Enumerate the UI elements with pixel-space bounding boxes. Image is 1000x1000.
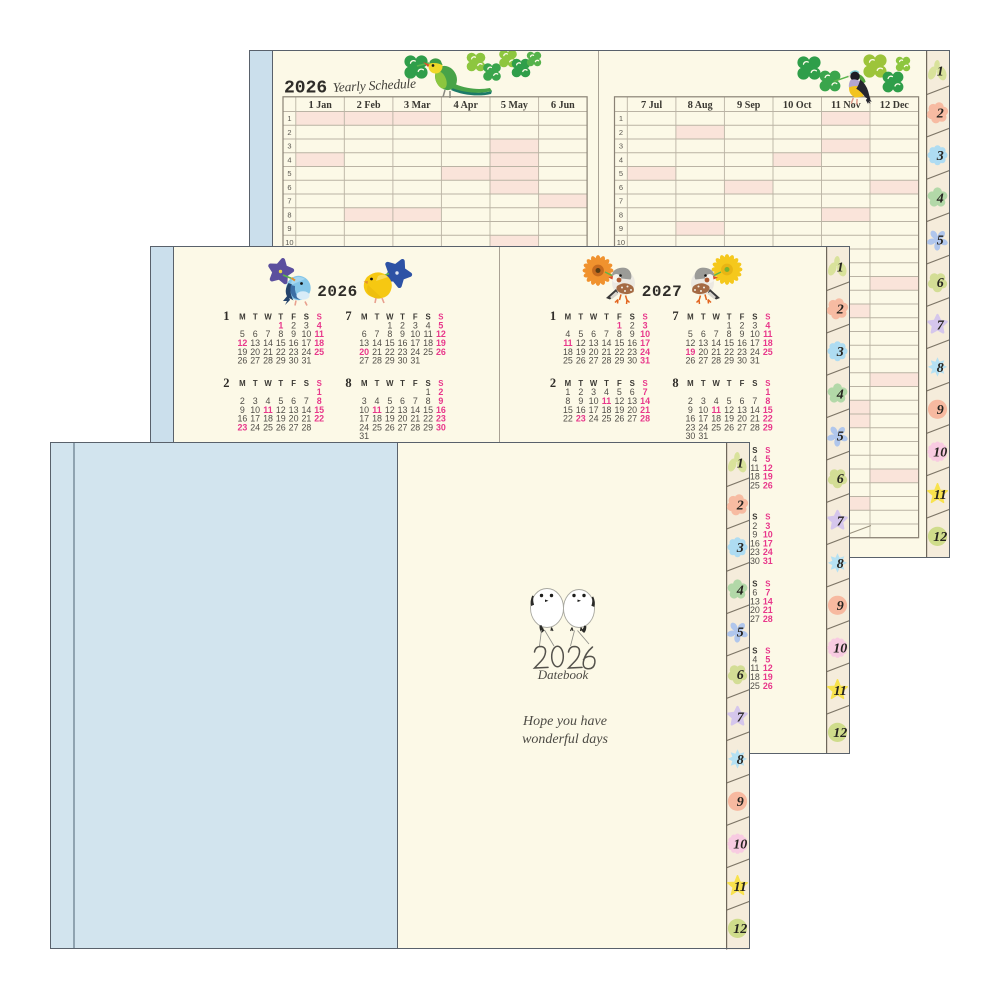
svg-text:8: 8 [287, 210, 291, 219]
svg-text:25: 25 [423, 347, 433, 357]
svg-text:29: 29 [763, 423, 773, 433]
svg-text:31: 31 [301, 356, 311, 366]
svg-text:3: 3 [836, 345, 844, 360]
svg-text:2: 2 [619, 128, 623, 137]
svg-text:S: S [752, 379, 757, 388]
svg-text:1: 1 [937, 64, 944, 79]
svg-text:6: 6 [619, 183, 623, 192]
svg-text:25: 25 [750, 681, 760, 691]
svg-text:26: 26 [385, 423, 395, 433]
svg-text:26: 26 [724, 423, 734, 433]
svg-text:11: 11 [934, 488, 947, 503]
svg-text:11 Nov: 11 Nov [831, 100, 861, 111]
svg-text:1: 1 [737, 457, 744, 472]
svg-text:5: 5 [287, 169, 291, 178]
svg-text:9: 9 [837, 599, 844, 614]
svg-text:1: 1 [287, 114, 291, 123]
svg-text:3: 3 [287, 142, 291, 151]
svg-text:6: 6 [287, 183, 291, 192]
svg-text:25: 25 [763, 347, 773, 357]
svg-text:29: 29 [276, 356, 286, 366]
svg-text:8: 8 [937, 361, 944, 376]
svg-text:W: W [713, 379, 721, 388]
svg-text:Hope you have: Hope you have [522, 714, 607, 729]
svg-text:7: 7 [937, 318, 945, 333]
svg-text:3: 3 [736, 541, 744, 556]
svg-text:24: 24 [250, 423, 260, 433]
svg-text:3: 3 [619, 142, 623, 151]
svg-text:30: 30 [398, 356, 408, 366]
svg-text:30: 30 [436, 423, 446, 433]
svg-text:25: 25 [711, 423, 721, 433]
svg-text:25: 25 [372, 423, 382, 433]
svg-text:25: 25 [563, 356, 573, 366]
svg-text:M: M [361, 313, 368, 322]
svg-text:F: F [291, 379, 296, 388]
svg-text:S: S [304, 379, 309, 388]
svg-text:23: 23 [576, 414, 586, 424]
svg-text:2: 2 [550, 376, 556, 390]
svg-text:W: W [713, 313, 721, 322]
svg-text:9 Sep: 9 Sep [737, 100, 761, 111]
svg-text:31: 31 [410, 356, 420, 366]
svg-text:26: 26 [763, 481, 773, 491]
svg-text:31: 31 [359, 431, 369, 441]
svg-text:F: F [413, 379, 418, 388]
svg-text:27: 27 [250, 356, 260, 366]
svg-text:7: 7 [619, 197, 623, 206]
svg-text:28: 28 [301, 423, 311, 433]
svg-text:5 May: 5 May [501, 100, 528, 111]
svg-text:2026: 2026 [284, 79, 327, 99]
svg-text:29: 29 [614, 356, 624, 366]
svg-text:M: M [687, 379, 694, 388]
svg-text:Yearly Schedule: Yearly Schedule [332, 76, 416, 95]
svg-text:8: 8 [672, 376, 678, 390]
svg-text:29: 29 [423, 423, 433, 433]
svg-text:27: 27 [698, 356, 708, 366]
svg-text:2 Feb: 2 Feb [357, 100, 381, 111]
svg-text:26: 26 [276, 423, 286, 433]
svg-text:7: 7 [345, 309, 351, 323]
svg-text:12: 12 [833, 726, 847, 741]
svg-text:3 Mar: 3 Mar [404, 100, 431, 111]
svg-text:M: M [687, 313, 694, 322]
svg-text:T: T [727, 379, 732, 388]
svg-text:26: 26 [237, 356, 247, 366]
svg-text:1: 1 [223, 309, 229, 323]
svg-text:29: 29 [385, 356, 395, 366]
svg-text:1: 1 [837, 261, 844, 276]
svg-text:T: T [278, 379, 283, 388]
svg-text:25: 25 [602, 414, 612, 424]
svg-text:Datebook: Datebook [537, 667, 589, 682]
svg-text:26: 26 [614, 414, 624, 424]
svg-text:6: 6 [737, 668, 744, 683]
svg-text:T: T [375, 313, 380, 322]
svg-text:26: 26 [685, 356, 695, 366]
svg-text:8 Aug: 8 Aug [688, 100, 713, 111]
svg-text:M: M [565, 313, 572, 322]
svg-text:M: M [361, 379, 368, 388]
svg-text:1: 1 [619, 114, 623, 123]
svg-text:8: 8 [737, 753, 744, 768]
svg-text:28: 28 [711, 356, 721, 366]
svg-text:6: 6 [937, 276, 944, 291]
svg-text:10: 10 [933, 446, 947, 461]
svg-text:31: 31 [750, 356, 760, 366]
svg-text:26: 26 [576, 356, 586, 366]
svg-text:2: 2 [736, 499, 744, 514]
svg-text:8: 8 [619, 210, 623, 219]
svg-text:T: T [701, 313, 706, 322]
svg-text:12 Dec: 12 Dec [880, 100, 910, 111]
svg-text:7: 7 [837, 515, 845, 530]
svg-text:24: 24 [589, 414, 599, 424]
svg-text:22: 22 [314, 414, 324, 424]
svg-text:T: T [253, 313, 258, 322]
svg-text:M: M [239, 379, 246, 388]
svg-text:25: 25 [263, 423, 273, 433]
svg-text:27: 27 [359, 356, 369, 366]
svg-text:2026: 2026 [317, 283, 357, 301]
svg-text:28: 28 [750, 423, 760, 433]
svg-text:28: 28 [602, 356, 612, 366]
svg-text:9: 9 [737, 795, 744, 810]
svg-text:6 Jun: 6 Jun [551, 100, 575, 111]
svg-text:T: T [375, 379, 380, 388]
svg-text:8: 8 [345, 376, 351, 390]
svg-text:11: 11 [734, 880, 747, 895]
svg-text:26: 26 [763, 681, 773, 691]
svg-text:11: 11 [834, 684, 847, 699]
svg-text:7: 7 [737, 711, 745, 726]
svg-text:W: W [386, 379, 394, 388]
svg-text:M: M [239, 313, 246, 322]
svg-text:7 Jul: 7 Jul [641, 100, 662, 111]
svg-text:wonderful days: wonderful days [522, 732, 608, 747]
svg-text:22: 22 [563, 414, 573, 424]
svg-text:5: 5 [737, 626, 744, 641]
svg-text:4: 4 [287, 155, 291, 164]
svg-text:27: 27 [289, 423, 299, 433]
svg-text:31: 31 [763, 556, 773, 566]
svg-text:9: 9 [619, 224, 623, 233]
svg-text:30: 30 [289, 356, 299, 366]
svg-text:4 Apr: 4 Apr [453, 100, 478, 111]
svg-text:7: 7 [287, 197, 291, 206]
svg-text:28: 28 [372, 356, 382, 366]
svg-text:2: 2 [836, 303, 844, 318]
svg-text:28: 28 [763, 614, 773, 624]
svg-text:23: 23 [237, 423, 247, 433]
svg-text:10: 10 [833, 642, 847, 657]
svg-text:9: 9 [287, 224, 291, 233]
svg-text:T: T [701, 379, 706, 388]
svg-text:4: 4 [736, 584, 744, 599]
svg-text:5: 5 [619, 169, 623, 178]
svg-text:T: T [578, 313, 583, 322]
svg-text:6: 6 [837, 472, 844, 487]
svg-text:31: 31 [698, 431, 708, 441]
svg-text:28: 28 [640, 414, 650, 424]
svg-text:4: 4 [836, 388, 844, 403]
svg-text:27: 27 [750, 614, 760, 624]
svg-text:W: W [264, 379, 272, 388]
svg-text:5: 5 [937, 234, 944, 249]
svg-text:12: 12 [933, 530, 947, 545]
svg-text:1: 1 [550, 309, 556, 323]
svg-text:28: 28 [410, 423, 420, 433]
svg-text:30: 30 [627, 356, 637, 366]
svg-text:27: 27 [589, 356, 599, 366]
svg-text:4: 4 [619, 155, 623, 164]
svg-text:10 Oct: 10 Oct [783, 100, 812, 111]
svg-text:27: 27 [627, 414, 637, 424]
svg-text:9: 9 [937, 403, 944, 418]
svg-text:W: W [590, 313, 598, 322]
svg-text:30: 30 [737, 356, 747, 366]
svg-text:2027: 2027 [642, 283, 682, 301]
svg-text:26: 26 [436, 347, 446, 357]
svg-text:27: 27 [398, 423, 408, 433]
svg-text:W: W [264, 313, 272, 322]
svg-text:T: T [253, 379, 258, 388]
svg-text:2: 2 [936, 107, 944, 122]
svg-text:7: 7 [672, 309, 678, 323]
svg-text:8: 8 [837, 557, 844, 572]
svg-text:4: 4 [936, 191, 944, 206]
svg-text:27: 27 [737, 423, 747, 433]
svg-text:5: 5 [837, 430, 844, 445]
svg-text:T: T [400, 379, 405, 388]
svg-text:2: 2 [223, 376, 229, 390]
svg-text:T: T [604, 313, 609, 322]
svg-text:12: 12 [733, 923, 747, 938]
svg-text:3: 3 [936, 149, 944, 164]
svg-text:30: 30 [750, 556, 760, 566]
svg-text:30: 30 [685, 431, 695, 441]
svg-text:28: 28 [263, 356, 273, 366]
svg-text:1 Jan: 1 Jan [308, 100, 332, 111]
svg-text:31: 31 [640, 356, 650, 366]
svg-text:2: 2 [287, 128, 291, 137]
svg-text:10: 10 [733, 838, 747, 853]
svg-text:25: 25 [750, 481, 760, 491]
svg-text:25: 25 [314, 347, 324, 357]
svg-text:29: 29 [724, 356, 734, 366]
svg-text:F: F [740, 379, 745, 388]
